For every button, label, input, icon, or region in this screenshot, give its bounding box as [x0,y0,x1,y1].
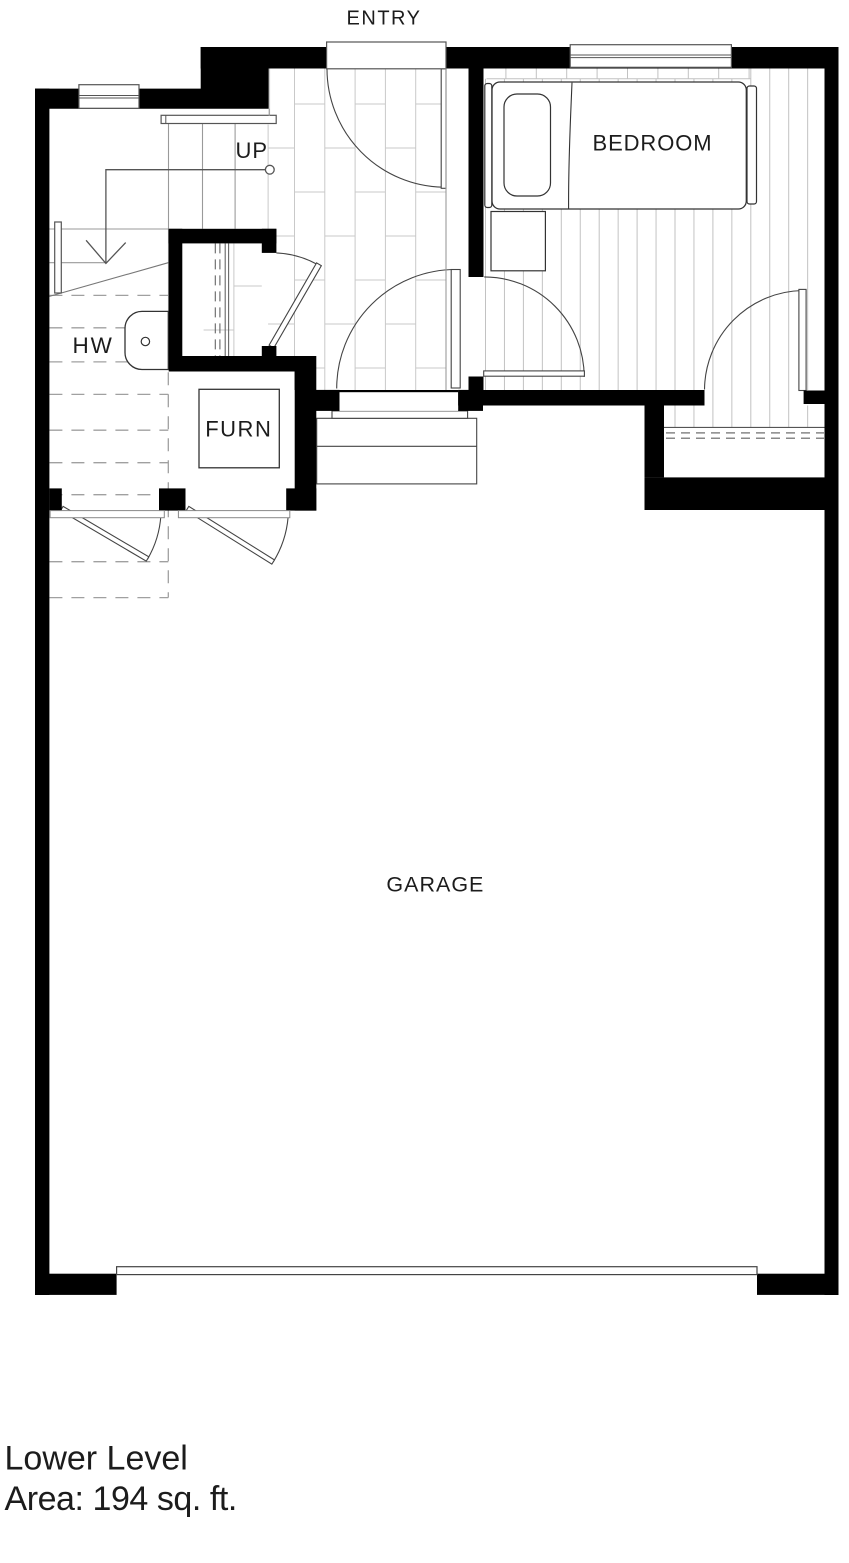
svg-text:GARAGE: GARAGE [386,872,484,896]
svg-text:UP: UP [236,138,269,163]
svg-text:BEDROOM: BEDROOM [593,131,713,156]
svg-text:FURN: FURN [205,417,272,442]
svg-text:Area: 194 sq. ft.: Area: 194 sq. ft. [5,1480,237,1518]
svg-text:Lower Level: Lower Level [5,1440,188,1478]
svg-text:ENTRY: ENTRY [347,8,422,30]
svg-text:HW: HW [72,333,114,358]
